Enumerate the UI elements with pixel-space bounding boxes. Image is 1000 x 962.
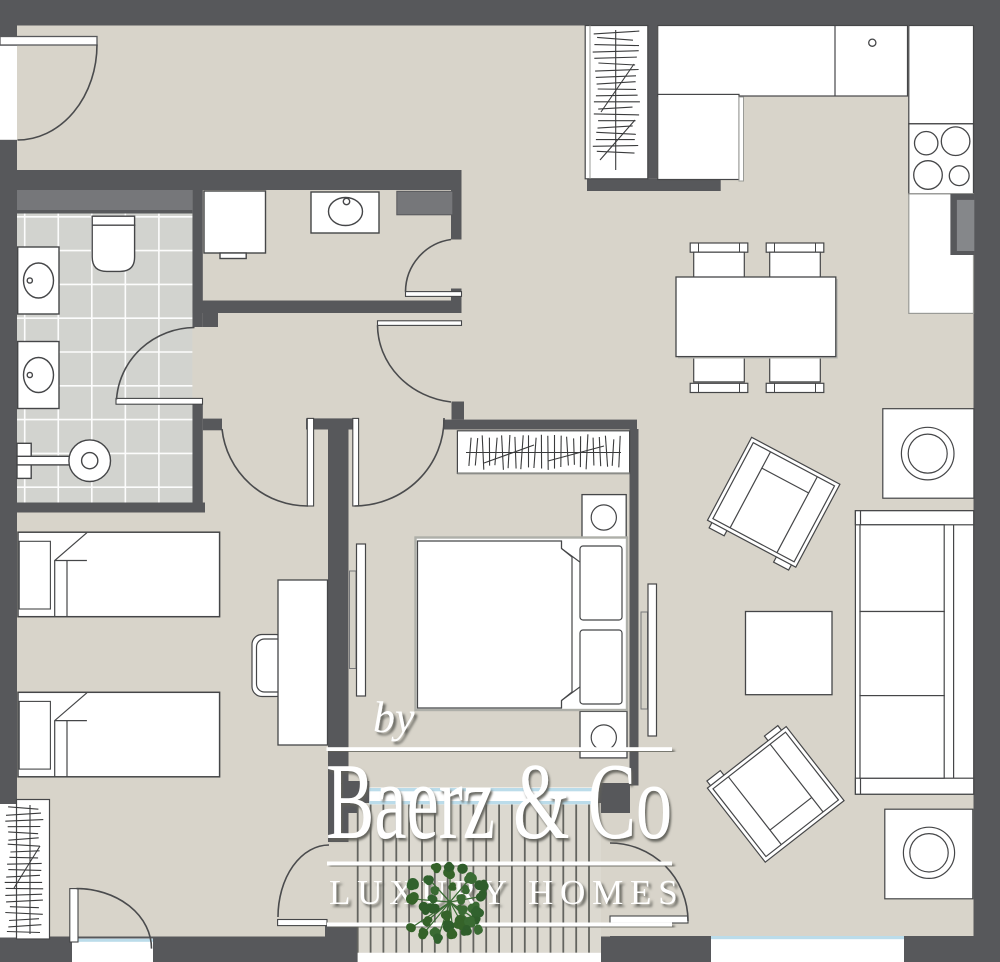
svg-text:by: by xyxy=(373,693,415,742)
svg-text:LUXURY HOMES: LUXURY HOMES xyxy=(329,873,684,912)
svg-text:Baerz & Co: Baerz & Co xyxy=(326,743,672,863)
